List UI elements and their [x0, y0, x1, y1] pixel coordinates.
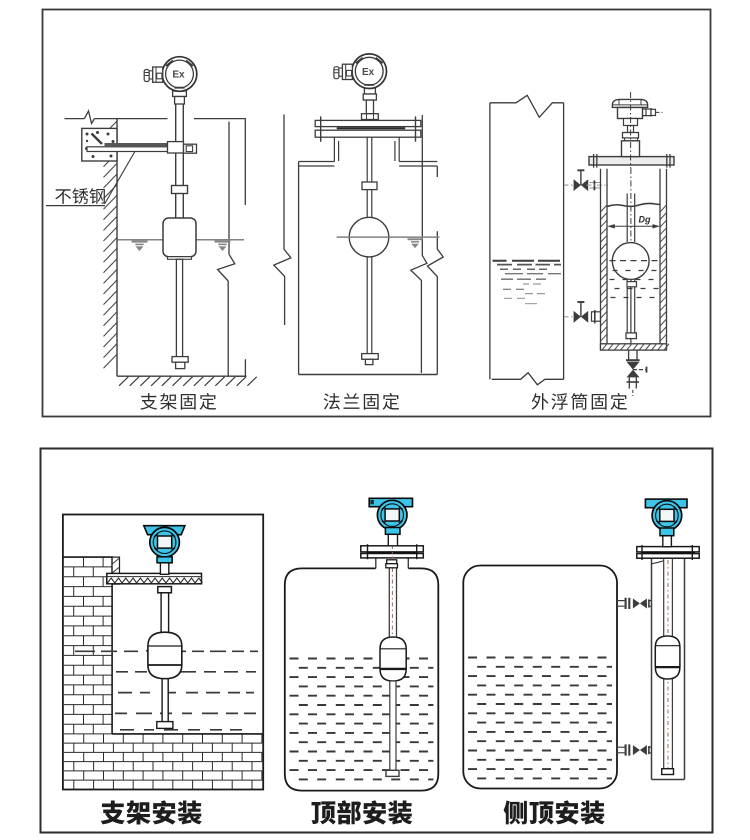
svg-text:Dg: Dg: [639, 215, 651, 225]
